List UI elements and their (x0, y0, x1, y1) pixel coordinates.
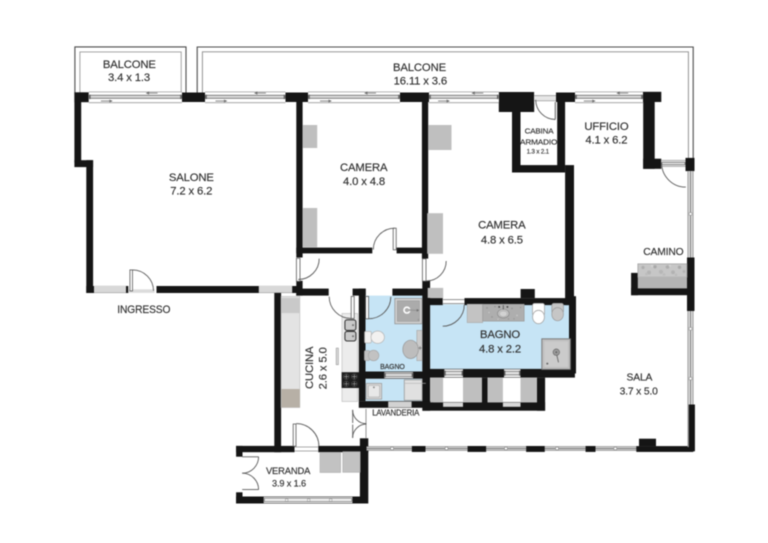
svg-text:3.7 x 5.0: 3.7 x 5.0 (620, 386, 659, 397)
svg-text:BAGNO: BAGNO (380, 362, 405, 371)
svg-text:CAMERA: CAMERA (340, 162, 388, 174)
svg-text:3.4 x 1.3: 3.4 x 1.3 (108, 72, 150, 84)
svg-text:CAMERA: CAMERA (478, 219, 526, 231)
svg-text:SALONE: SALONE (169, 172, 215, 184)
svg-text:7.2 x 6.2: 7.2 x 6.2 (170, 186, 212, 198)
svg-text:3.9 x 1.6: 3.9 x 1.6 (272, 478, 306, 488)
svg-text:CUCINA: CUCINA (304, 346, 316, 389)
svg-text:INGRESSO: INGRESSO (117, 304, 170, 316)
svg-text:4.0 x 4.8: 4.0 x 4.8 (343, 176, 385, 188)
svg-text:16.11 x 3.6: 16.11 x 3.6 (394, 76, 447, 88)
svg-text:SALA: SALA (627, 372, 653, 383)
svg-text:CAMINO: CAMINO (643, 247, 683, 258)
svg-text:ARMADIO: ARMADIO (520, 137, 557, 146)
svg-text:CABINA: CABINA (525, 127, 555, 136)
svg-text:2.6 x 5.0: 2.6 x 5.0 (317, 347, 329, 389)
svg-text:VERANDA: VERANDA (266, 465, 311, 476)
svg-text:BAGNO: BAGNO (480, 329, 520, 341)
svg-text:LAVANDERIA: LAVANDERIA (372, 408, 420, 417)
svg-text:BALCONE: BALCONE (393, 62, 447, 74)
svg-text:4.8 x 6.5: 4.8 x 6.5 (481, 234, 523, 246)
svg-text:BALCONE: BALCONE (103, 59, 157, 71)
svg-text:1.3 x 2.1: 1.3 x 2.1 (527, 150, 550, 156)
svg-text:4.1 x 6.2: 4.1 x 6.2 (585, 134, 627, 146)
svg-text:UFFICIO: UFFICIO (584, 121, 628, 133)
svg-text:4.8 x 2.2: 4.8 x 2.2 (479, 343, 521, 355)
